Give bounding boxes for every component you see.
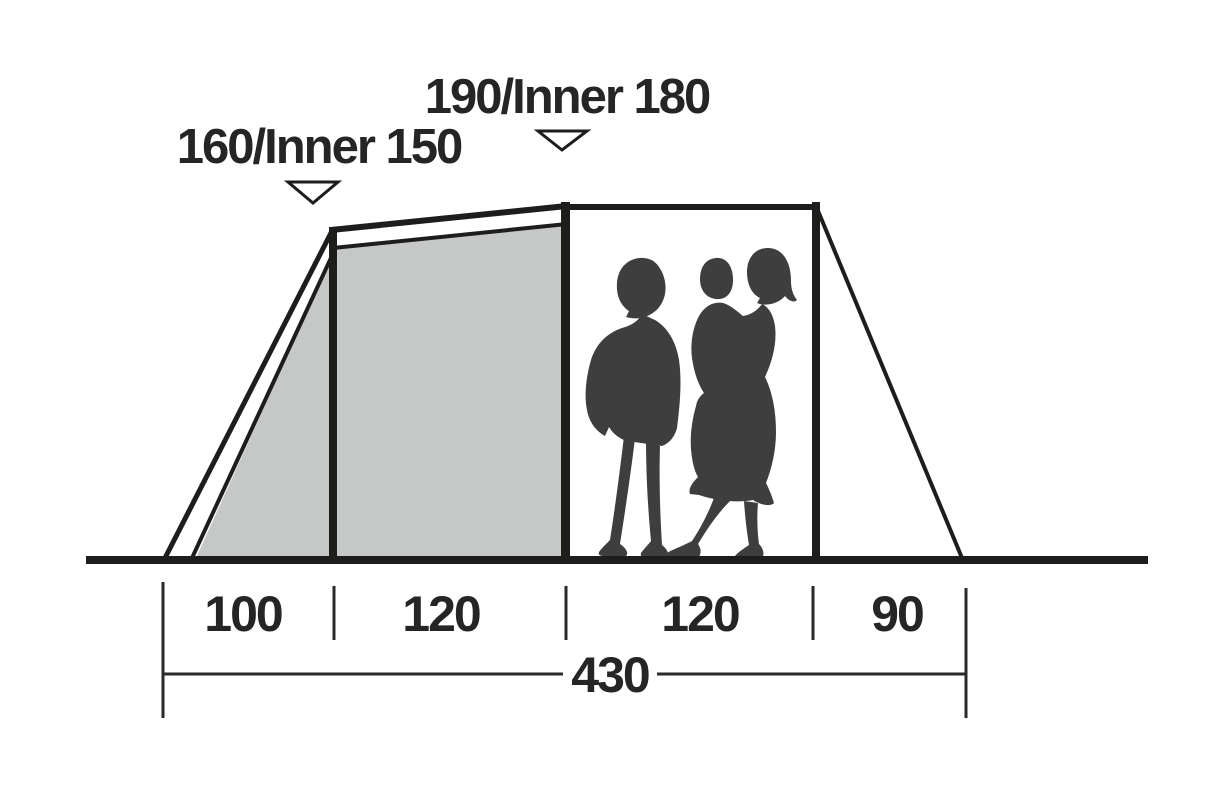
adult2-head bbox=[747, 248, 797, 305]
adult-with-child-silhouette bbox=[664, 248, 797, 559]
adult-silhouette bbox=[586, 258, 681, 557]
dimension-label-90: 90 bbox=[837, 588, 957, 641]
height-label-190: 190/Inner 180 bbox=[407, 72, 727, 123]
dimension-label-120-rear: 120 bbox=[381, 588, 501, 641]
total-width-label: 430 bbox=[550, 649, 670, 702]
adult2-body-with-child bbox=[689, 303, 776, 506]
adult-leg-left bbox=[599, 436, 635, 556]
dimension-label-100: 100 bbox=[183, 588, 303, 641]
height-marker-190-icon bbox=[538, 131, 587, 150]
height-label-160: 160/Inner 150 bbox=[159, 122, 479, 173]
tent-pole-rear bbox=[329, 227, 337, 560]
adult2-leg-back bbox=[735, 501, 764, 559]
adult-leg-right bbox=[641, 440, 668, 557]
adult-body bbox=[586, 313, 681, 446]
tent-pole-front bbox=[812, 202, 820, 560]
family-silhouette bbox=[586, 248, 797, 559]
child-head bbox=[700, 258, 733, 299]
height-marker-160-icon bbox=[288, 182, 338, 203]
front-guy-line bbox=[816, 206, 962, 558]
adult-head bbox=[617, 258, 666, 318]
tent-dimension-diagram: 160/Inner 150 190/Inner 180 100 120 120 … bbox=[0, 0, 1230, 800]
dimension-label-120-front: 120 bbox=[640, 588, 760, 641]
tent-pole-middle bbox=[561, 202, 570, 560]
adult2-leg-front bbox=[664, 498, 730, 558]
